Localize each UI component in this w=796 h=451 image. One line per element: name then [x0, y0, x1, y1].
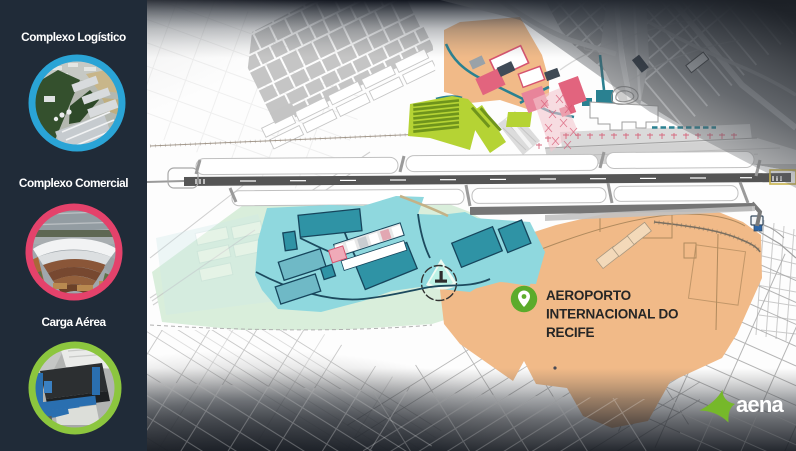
svg-text:INTERNACIONAL DO: INTERNACIONAL DO — [546, 307, 678, 322]
svg-text:AEROPORTO: AEROPORTO — [546, 288, 631, 303]
svg-text:aena: aena — [736, 392, 785, 417]
svg-text:RECIFE: RECIFE — [546, 325, 595, 340]
